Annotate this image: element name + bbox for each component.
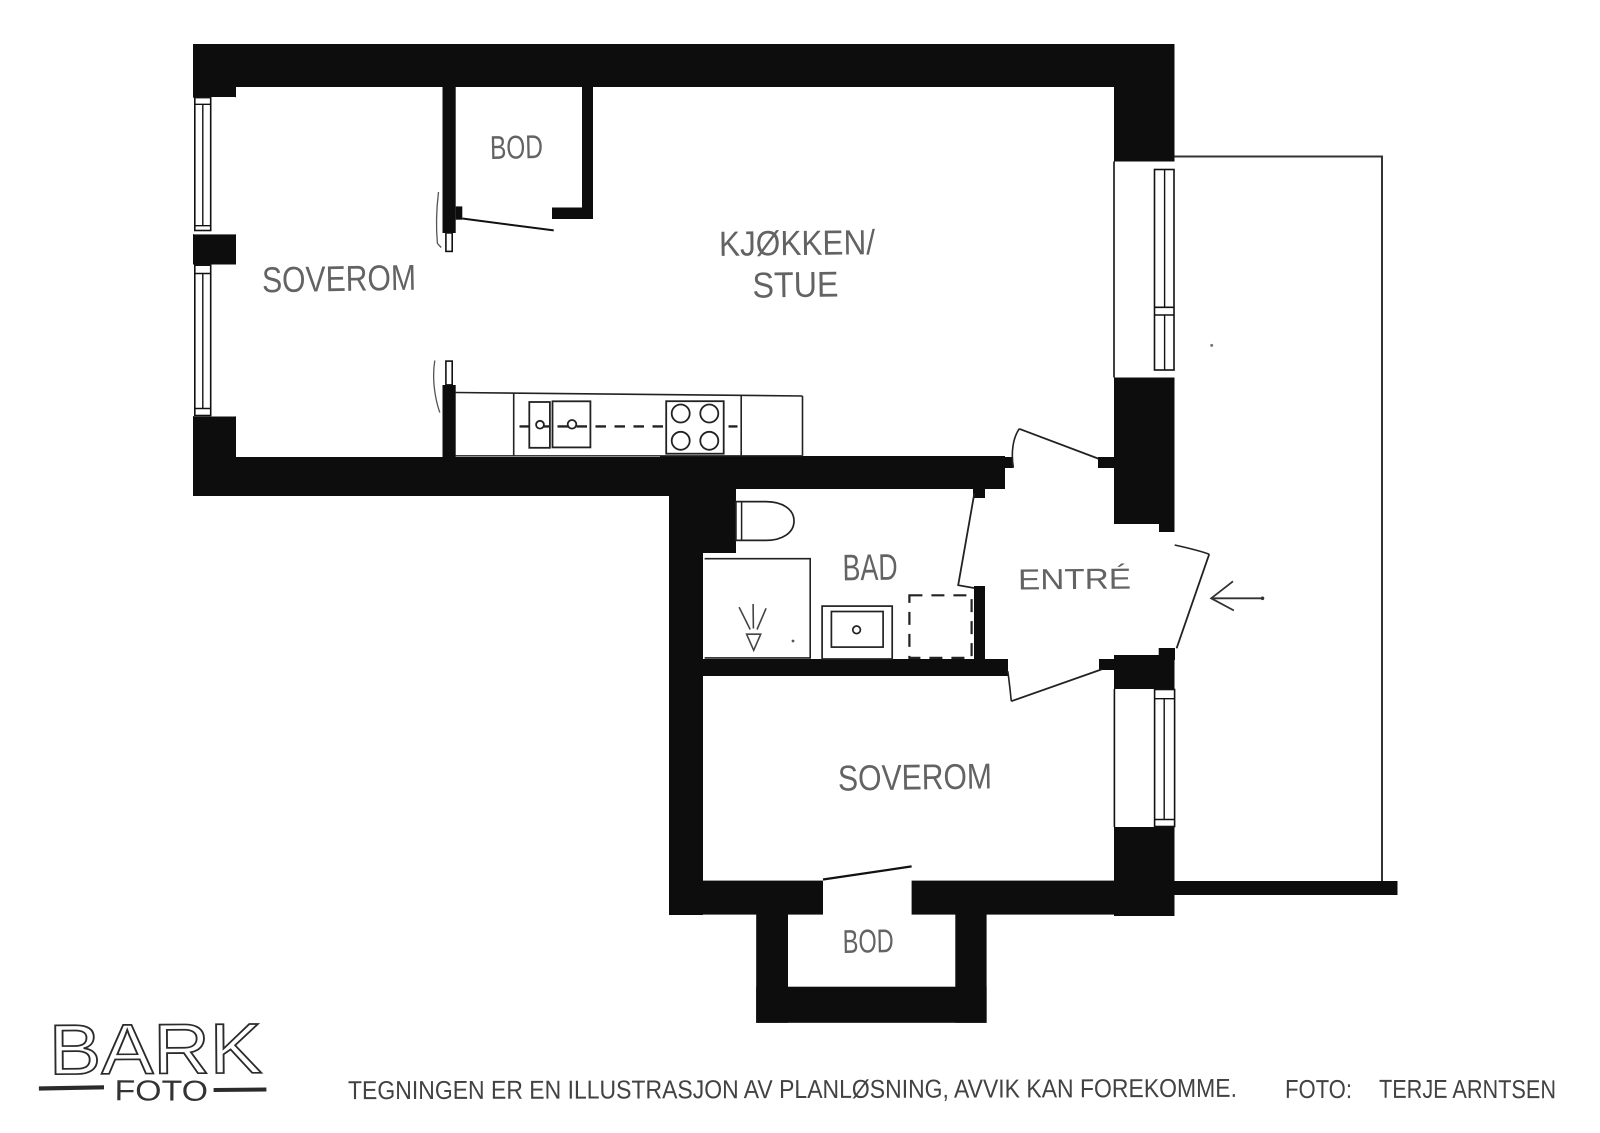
svg-text:BOD: BOD <box>842 922 894 960</box>
svg-text:ENTRÉ: ENTRÉ <box>1018 563 1131 597</box>
svg-text:SOVEROM: SOVEROM <box>262 257 417 301</box>
svg-text:FOTO: FOTO <box>114 1075 208 1107</box>
svg-text:TERJE ARNTSEN: TERJE ARNTSEN <box>1379 1074 1556 1104</box>
svg-text:BAD: BAD <box>842 547 898 589</box>
svg-text:BOD: BOD <box>490 128 544 166</box>
svg-text:SOVEROM: SOVEROM <box>838 755 993 798</box>
svg-text:FOTO:: FOTO: <box>1285 1074 1352 1104</box>
svg-text:TEGNINGEN ER EN ILLUSTRASJON A: TEGNINGEN ER EN ILLUSTRASJON AV PLANLØSN… <box>348 1073 1237 1105</box>
svg-text:STUE: STUE <box>752 263 839 305</box>
svg-text:KJØKKEN/: KJØKKEN/ <box>719 223 876 264</box>
